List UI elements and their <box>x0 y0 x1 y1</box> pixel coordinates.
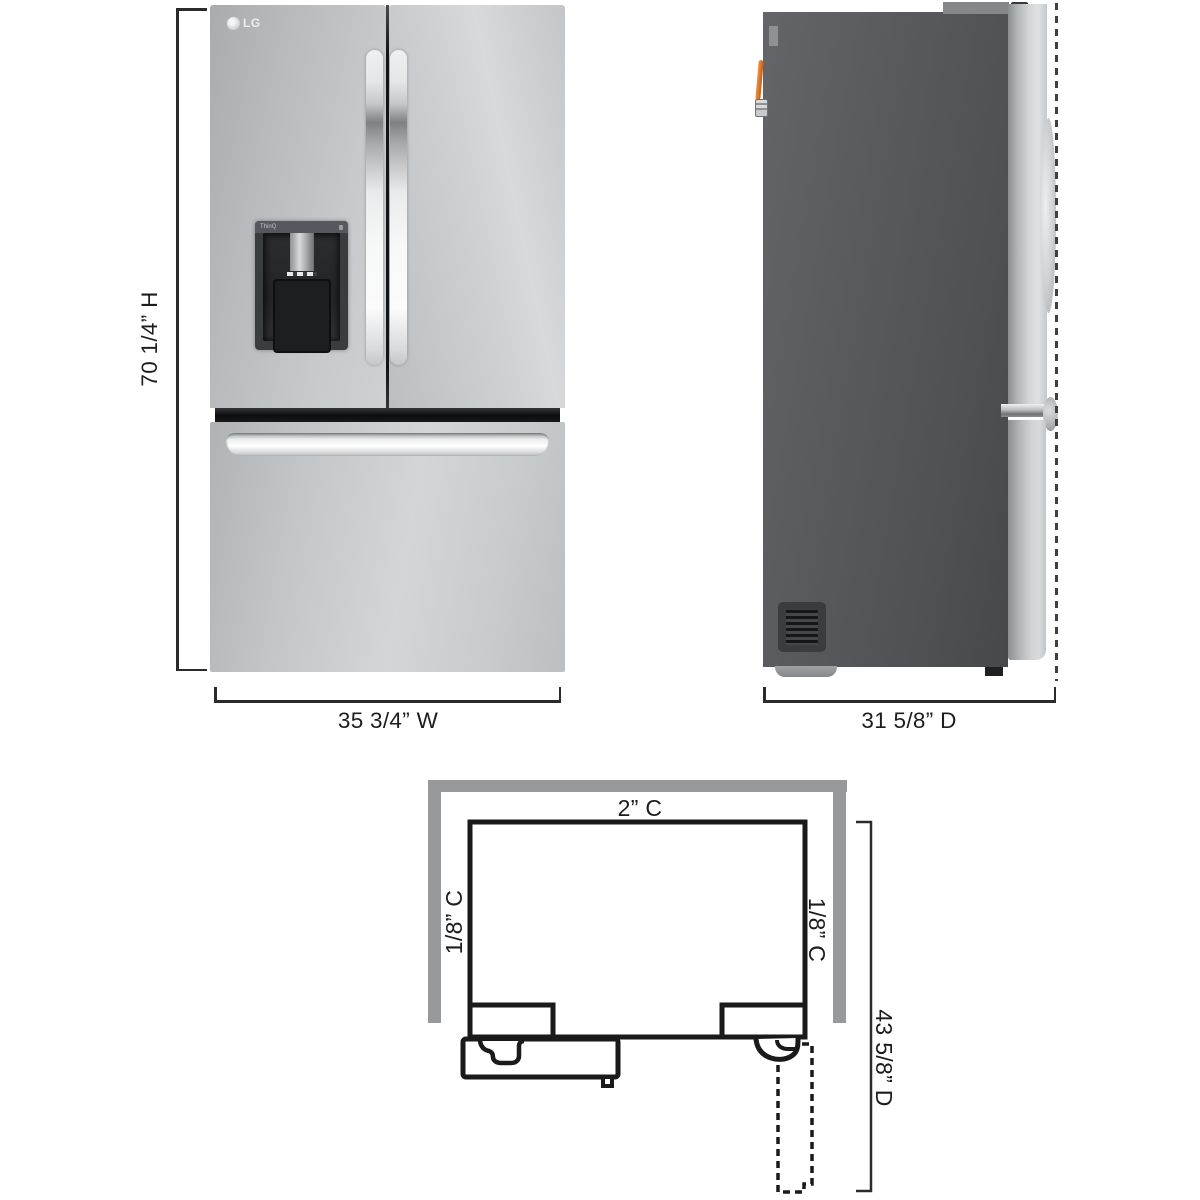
side-top-bracket <box>769 26 778 46</box>
thinq-label: ThinQ <box>260 224 276 230</box>
dispenser-lights <box>287 272 317 276</box>
dispenser-control-panel: ThinQ <box>255 221 348 233</box>
lg-logo-text: LG <box>243 16 261 30</box>
top-down-clearance-diagram: 2” C 1/8” C 1/8” C 43 5/8” D <box>400 760 900 1200</box>
side-rear-foot <box>775 666 837 677</box>
height-dimension-bottom-tick <box>176 669 207 672</box>
left-door-handle <box>366 50 383 365</box>
left-door-stop-detail <box>603 1077 612 1086</box>
wall-left <box>428 780 441 1023</box>
dispenser-recess <box>263 233 340 341</box>
width-dimension-line <box>214 700 561 703</box>
refrigerator-dimension-diagram: 70 1/4” H LG ThinQ <box>0 0 1200 1200</box>
wall-back <box>428 780 847 792</box>
depth-dimension-label: 31 5/8” D <box>861 708 956 734</box>
lg-logo: LG <box>227 16 261 30</box>
depth-dimension-left-tick <box>763 687 766 703</box>
back-clearance-label: 2” C <box>618 795 663 821</box>
water-valve-connector <box>755 99 768 117</box>
height-dimension-label: 70 1/4” H <box>137 291 163 386</box>
right-door-open-dashed <box>778 1044 812 1192</box>
front-right-door <box>389 5 565 408</box>
refrigerator-front-view: LG ThinQ <box>210 5 565 672</box>
right-door-handle <box>390 50 407 365</box>
freezer-drawer <box>210 422 565 672</box>
wall-right <box>833 780 846 1023</box>
freezer-drawer-handle <box>226 433 549 456</box>
depth-reference-dashed-line <box>1055 3 1058 681</box>
side-middle-hinge <box>1001 404 1047 417</box>
open-depth-label: 43 5/8” D <box>871 1009 897 1106</box>
water-ice-dispenser: ThinQ <box>255 221 348 350</box>
front-left-door: LG ThinQ <box>210 5 386 408</box>
side-top-hinge-cover <box>943 2 1009 14</box>
clearance-diagram-svg: 2” C 1/8” C 1/8” C 43 5/8” D <box>400 760 900 1200</box>
side-front-foot <box>985 667 1003 676</box>
right-clearance-label: 1/8” C <box>804 898 830 962</box>
side-door-handle-profile <box>1041 118 1056 313</box>
vent-louvers <box>786 610 818 645</box>
side-freezer-door <box>1008 420 1046 660</box>
lg-badge-icon <box>227 17 240 30</box>
width-dimension-right-tick <box>559 687 562 703</box>
width-dimension-left-tick <box>214 687 217 703</box>
height-dimension-line <box>176 8 179 671</box>
height-dimension-top-tick <box>176 8 207 11</box>
side-back-panel <box>763 12 1008 667</box>
width-dimension-label: 35 3/4” W <box>338 708 438 734</box>
dispenser-spout <box>290 233 314 271</box>
open-depth-dimension-bracket <box>856 822 871 1191</box>
refrigerator-side-view <box>755 0 1070 690</box>
dispenser-status-icon <box>339 225 343 230</box>
depth-dimension-line <box>763 700 1056 703</box>
dispenser-paddle <box>273 279 331 353</box>
depth-dimension-right-tick <box>1054 687 1057 703</box>
left-clearance-label: 1/8” C <box>441 890 467 954</box>
compressor-vent-grille <box>778 602 826 652</box>
